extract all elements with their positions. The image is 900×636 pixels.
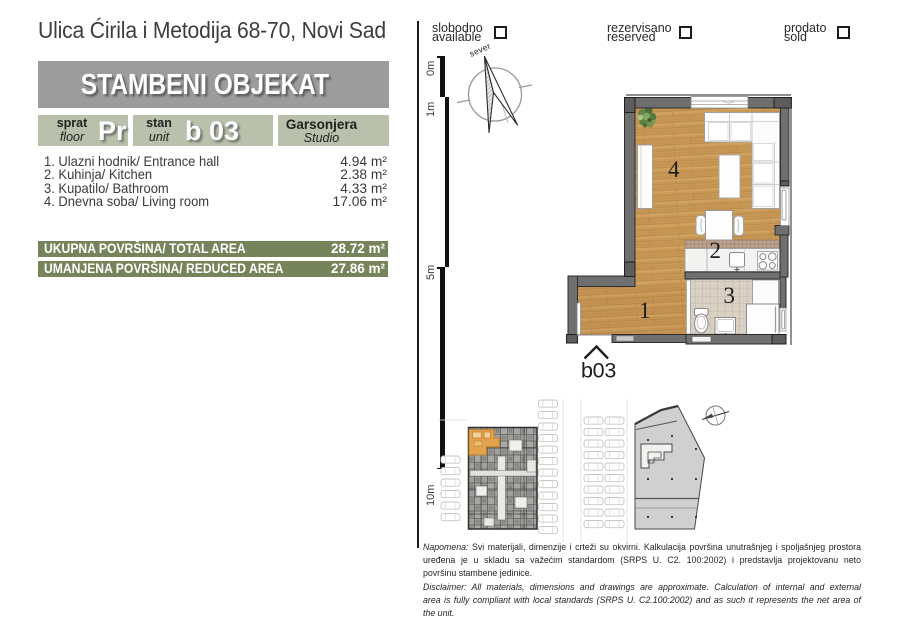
svg-text:sever: sever [468,41,492,59]
svg-text:b03: b03 [581,359,616,383]
svg-text:2: 2 [710,238,722,263]
svg-text:1: 1 [639,298,651,323]
svg-text:3: 3 [724,283,736,308]
svg-text:4: 4 [668,157,680,182]
